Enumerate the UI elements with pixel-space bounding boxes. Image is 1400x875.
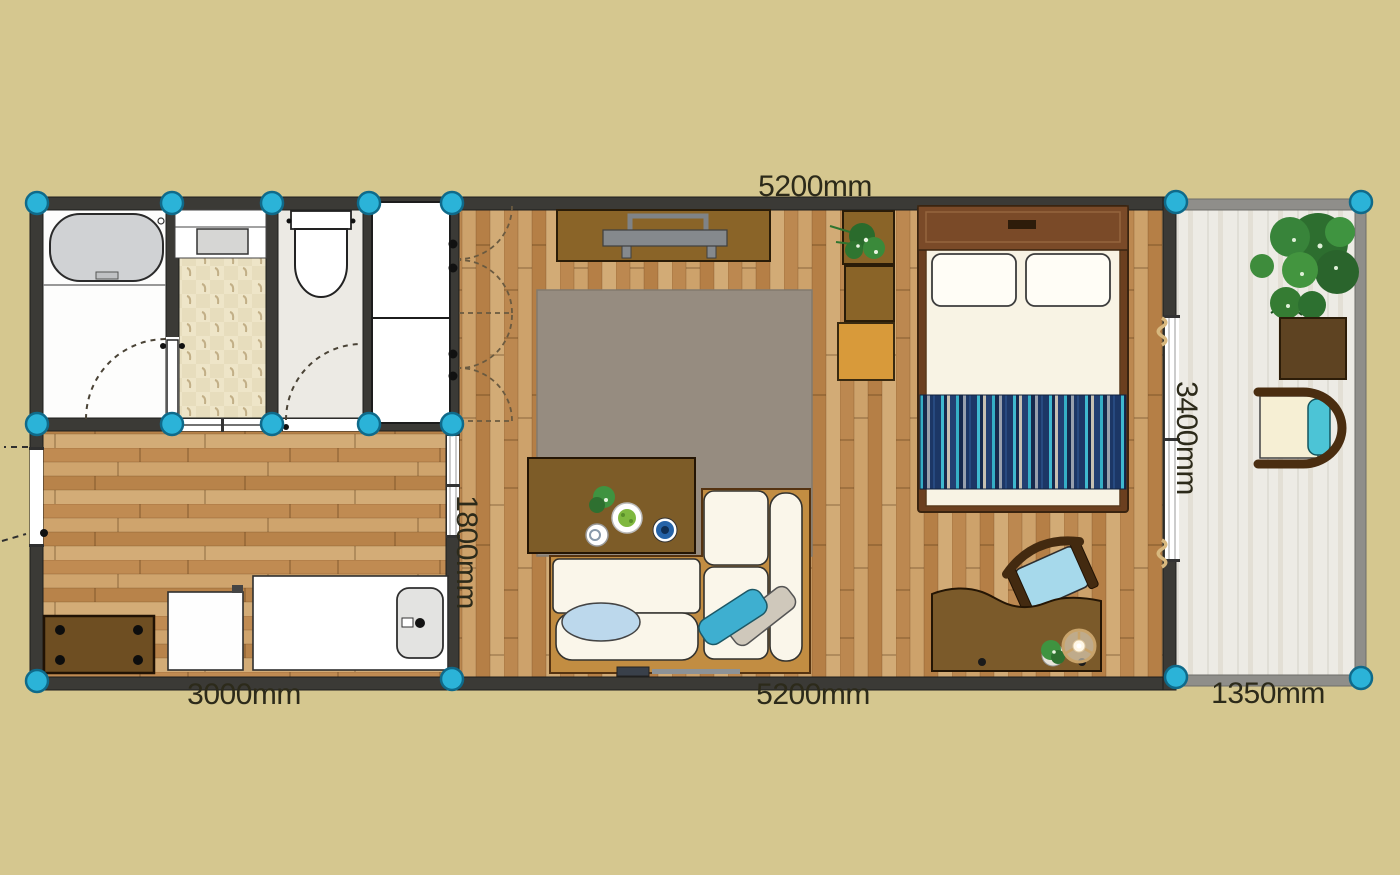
corner-handle[interactable] — [26, 192, 48, 214]
corner-handle[interactable] — [26, 413, 48, 435]
corner-handle[interactable] — [1350, 191, 1372, 213]
entry-door[interactable] — [2, 447, 48, 547]
corner-handle[interactable] — [261, 413, 283, 435]
dimension-label-bottom-middle-width: 5200mm — [756, 678, 870, 712]
wall-washroom-toilet — [266, 197, 278, 431]
bathtub[interactable] — [50, 214, 164, 281]
salad-plate-icon — [612, 503, 642, 533]
dining-table[interactable] — [44, 616, 154, 673]
pillow-left — [932, 254, 1016, 306]
sofa-back-cushion — [704, 491, 768, 565]
corner-handle[interactable] — [161, 413, 183, 435]
sofa-seat-cushion — [553, 559, 700, 613]
corner-handle[interactable] — [261, 192, 283, 214]
double-bed[interactable] — [918, 206, 1128, 512]
small-plate-icon — [586, 524, 608, 546]
corner-handle[interactable] — [358, 192, 380, 214]
door-handle-dot — [40, 529, 48, 537]
washroom-mat-floor — [175, 258, 266, 419]
dimension-label-bottom-right-width: 1350mm — [1211, 677, 1325, 711]
balcony-chair[interactable] — [1258, 392, 1342, 464]
sofa-armrest — [770, 493, 802, 661]
kitchen-counter[interactable] — [253, 576, 448, 670]
storage-box[interactable] — [838, 323, 894, 380]
dimension-label-left-room-depth: 1800mm — [449, 495, 483, 609]
dimension-label-right-room-depth: 3400mm — [1169, 381, 1203, 495]
kitchen-sink — [397, 588, 443, 658]
corner-handle[interactable] — [441, 668, 463, 690]
dimension-label-top-width: 5200mm — [758, 170, 872, 204]
faucet-icon — [415, 618, 425, 628]
bathtub-faucet-icon — [158, 218, 164, 224]
blue-pillow-icon — [562, 603, 640, 641]
storage-closet[interactable] — [372, 202, 458, 423]
balcony-table[interactable] — [1280, 318, 1346, 379]
corner-handle[interactable] — [1165, 191, 1187, 213]
corner-handle[interactable] — [161, 192, 183, 214]
washroom-sliding-door[interactable] — [179, 418, 265, 432]
corner-handle[interactable] — [441, 413, 463, 435]
sofa-hinge — [617, 667, 649, 676]
corner-handle[interactable] — [358, 413, 380, 435]
corner-handle[interactable] — [441, 192, 463, 214]
balcony-wall-top — [1176, 199, 1366, 210]
corner-handle[interactable] — [26, 670, 48, 692]
vanity-sink[interactable] — [175, 210, 266, 258]
coffee-table[interactable] — [528, 458, 695, 553]
floor-plan-canvas: 5200mm 3000mm 5200mm 1350mm 1800mm 3400m… — [0, 0, 1400, 875]
sofa-rail — [652, 669, 740, 674]
dimension-label-bottom-left-width: 3000mm — [187, 678, 301, 712]
corner-handle[interactable] — [1165, 666, 1187, 688]
chair-pillow-icon — [1308, 399, 1330, 455]
pillow-right — [1026, 254, 1110, 306]
desk-lamp-icon — [1063, 630, 1095, 662]
wall-left — [30, 197, 43, 690]
corner-handle[interactable] — [1350, 667, 1372, 689]
blue-bowl-icon — [653, 518, 677, 542]
appliance[interactable] — [168, 585, 243, 670]
bed-runner-rug[interactable] — [920, 395, 1126, 489]
